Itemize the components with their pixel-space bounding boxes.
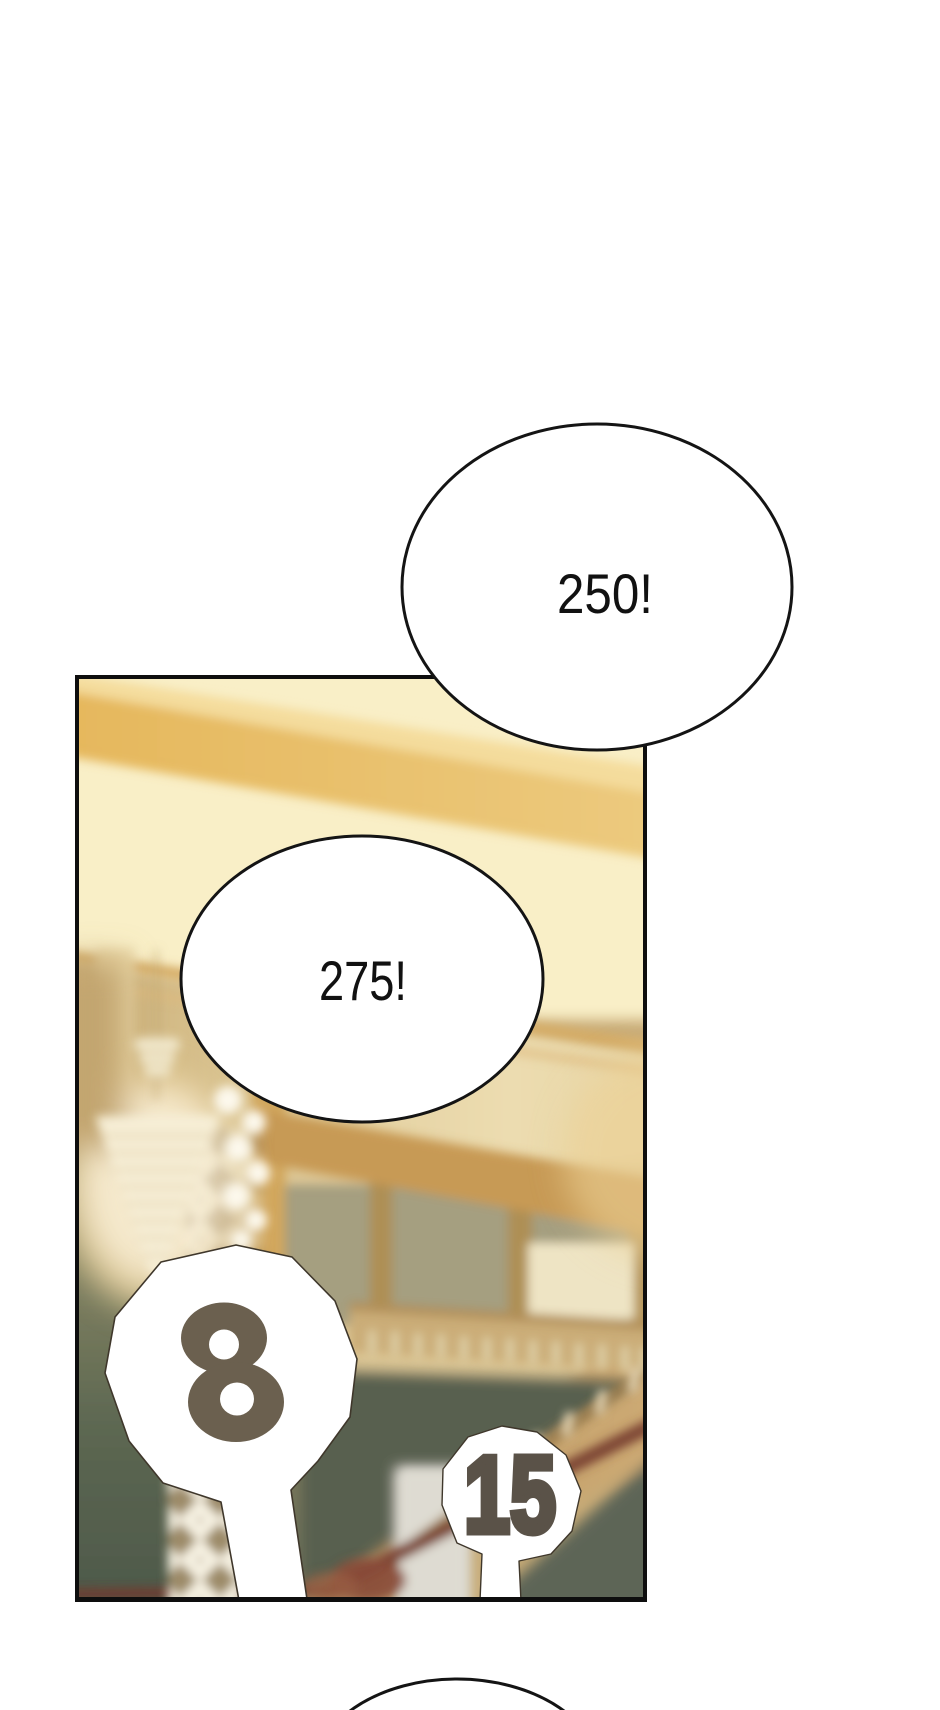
svg-text:250!: 250!	[557, 562, 653, 625]
svg-text:15: 15	[464, 1434, 556, 1556]
svg-text:275!: 275!	[319, 949, 407, 1012]
